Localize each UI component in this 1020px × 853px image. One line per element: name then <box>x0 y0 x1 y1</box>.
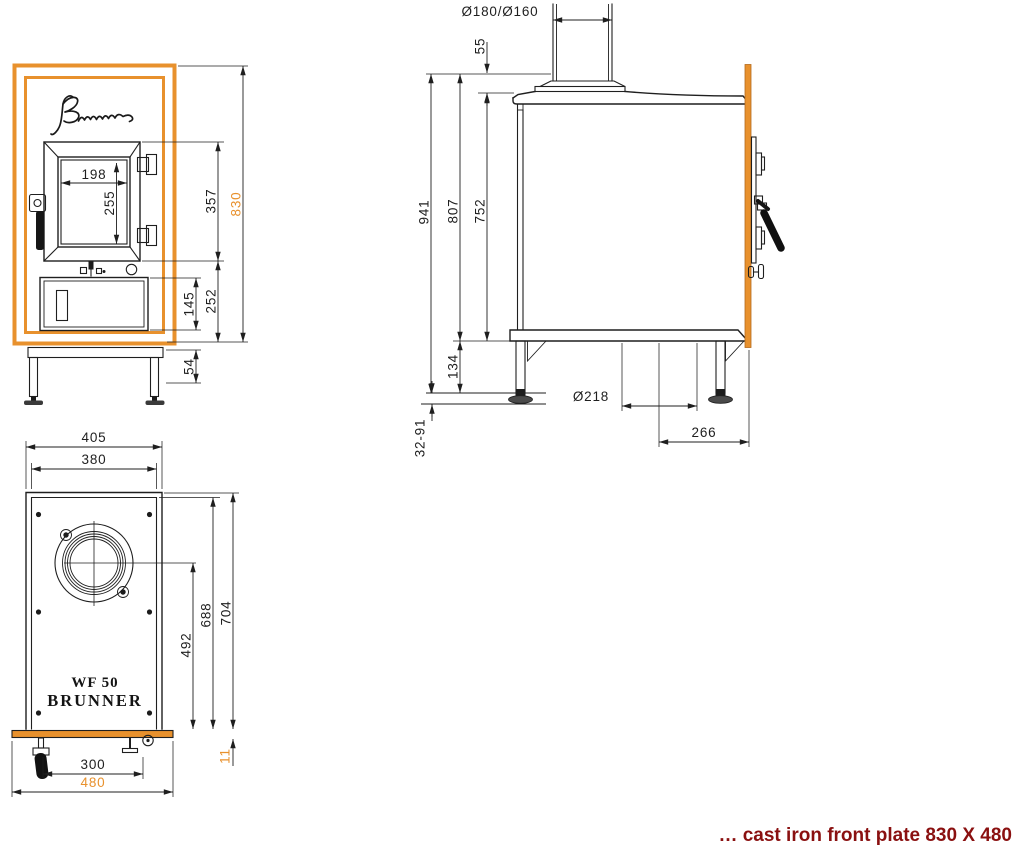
model-cast-text: WF 50 <box>71 675 118 691</box>
side-leg-right <box>716 341 725 393</box>
dim-glass-width: 198 <box>82 167 107 182</box>
front-view: 198 255 357 252 830 145 54 <box>15 66 249 406</box>
dim-base-height: 54 <box>182 358 197 375</box>
front-view-dimensions: 198 255 357 252 830 145 54 <box>61 66 248 383</box>
gusset-left <box>528 341 547 361</box>
dim-lower-zone: 252 <box>204 289 219 314</box>
flue-collar-base <box>535 87 625 92</box>
drawing-caption: … cast iron front plate 830 X 480 <box>718 825 1012 846</box>
dim-flue-center-depth: 492 <box>179 633 194 658</box>
control-knob <box>126 264 136 274</box>
front-plate-top-edge <box>12 731 173 738</box>
flue-opening-top <box>55 521 196 606</box>
base-frame-front <box>24 348 165 406</box>
door-latch <box>30 195 46 251</box>
dim-plate-thickness: 11 <box>218 748 233 764</box>
control-lever <box>89 262 94 270</box>
dim-latch-span: 300 <box>81 757 106 772</box>
air-controls <box>81 262 137 277</box>
handle-top-view <box>34 752 49 779</box>
flue-collar-skirt <box>540 81 625 87</box>
flue-pipe <box>535 4 625 92</box>
dim-inner-depth: 688 <box>199 603 214 628</box>
fire-door <box>30 142 157 261</box>
ash-drawer <box>40 278 148 331</box>
adjustable-foot-right <box>146 401 165 406</box>
flange-bolt <box>63 532 68 537</box>
door-handle-bar <box>36 211 44 250</box>
adjustable-foot-left <box>24 401 43 406</box>
front-plate-inner-edge <box>26 78 164 333</box>
dim-foot-adjust: 32-91 <box>413 419 428 458</box>
dim-base-clearance: 134 <box>446 354 461 379</box>
side-foot-right <box>709 396 733 404</box>
dim-opening-distance: 266 <box>692 425 717 440</box>
dim-collar-height: 55 <box>473 38 488 55</box>
door-hardware-side <box>749 137 782 279</box>
dim-overall-height: 941 <box>417 200 432 225</box>
dim-front-plate-height: 830 <box>229 192 244 217</box>
brand-cast-text: BRUNNER <box>47 691 143 710</box>
base-plate-side <box>510 330 746 341</box>
gusset-right <box>726 341 745 361</box>
side-view: Ø180/Ø160 55 941 807 752 134 32-91 Ø218 <box>413 4 782 457</box>
dim-glass-height: 255 <box>102 191 117 216</box>
brunner-signature <box>51 96 133 134</box>
door-handle-side <box>764 213 781 248</box>
side-view-dimensions: Ø180/Ø160 55 941 807 752 134 32-91 Ø218 <box>413 4 750 457</box>
dim-bottom-opening: Ø218 <box>573 389 609 404</box>
door-edge-side <box>752 137 757 263</box>
control-slider <box>81 268 87 274</box>
technical-drawing-page: 198 255 357 252 830 145 54 <box>0 0 1020 853</box>
dim-inner-width: 380 <box>82 452 107 467</box>
dim-door-height: 357 <box>204 189 219 214</box>
base-leg-right <box>151 358 159 397</box>
front-plate-outer-edge <box>15 66 175 344</box>
dim-plate-width: 480 <box>81 775 106 790</box>
ash-drawer-handle <box>57 291 68 321</box>
dim-outer-width: 405 <box>82 430 107 445</box>
dim-height-807: 807 <box>446 199 461 224</box>
top-view-dimensions: 405 380 704 688 492 11 300 480 <box>12 430 239 797</box>
top-view: WF 50 BRUNNER 405 380 704 <box>12 430 239 797</box>
dim-flue-diameter: Ø180/Ø160 <box>461 4 538 19</box>
flange-bolt <box>120 589 125 594</box>
base-leg-left <box>30 358 38 397</box>
dim-ash-door-height: 145 <box>182 292 197 317</box>
side-leg-left <box>516 341 525 393</box>
dim-body-height: 752 <box>473 199 488 224</box>
dim-outer-depth: 704 <box>219 601 234 626</box>
stove-dimension-drawing: 198 255 357 252 830 145 54 <box>0 0 1020 853</box>
front-plate-side-edge <box>745 65 751 348</box>
side-foot-left <box>509 396 533 404</box>
